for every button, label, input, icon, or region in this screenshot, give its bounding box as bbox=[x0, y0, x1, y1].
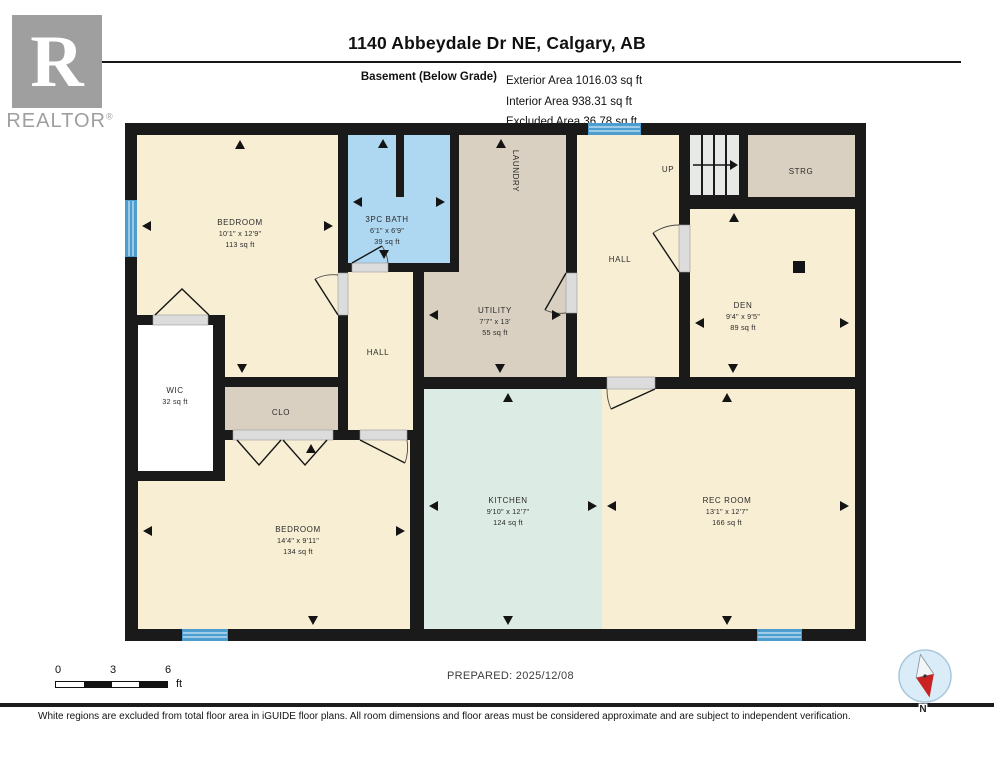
label-bath-name: 3PC BATH bbox=[365, 215, 408, 224]
label-rec-area: 166 sq ft bbox=[712, 518, 742, 527]
exterior-area: Exterior Area 1016.03 sq ft bbox=[506, 71, 642, 92]
label-kitchen-area: 124 sq ft bbox=[493, 518, 523, 527]
bath-partition-wall bbox=[396, 135, 404, 197]
window-left bbox=[125, 200, 137, 257]
footer-divider bbox=[0, 703, 994, 707]
scale-tick-3: 3 bbox=[110, 664, 116, 676]
label-bedroom2-dims: 14'4" x 9'11" bbox=[277, 536, 319, 545]
door-opening-bath bbox=[352, 263, 388, 272]
realtor-logo-letter: R bbox=[30, 25, 83, 99]
label-kitchen-dims: 9'10" x 12'7" bbox=[487, 507, 530, 516]
label-rec-dims: 13'1" x 12'7" bbox=[706, 507, 749, 516]
door-opening-wic bbox=[153, 315, 208, 325]
window-bedroom2 bbox=[182, 629, 228, 641]
registered-mark: ® bbox=[106, 111, 114, 121]
realtor-wordmark: REALTOR® bbox=[2, 110, 118, 133]
label-utility-area: 55 sq ft bbox=[482, 328, 508, 337]
scale-tick-6: 6 bbox=[165, 664, 171, 676]
page-title: 1140 Abbeydale Dr NE, Calgary, AB bbox=[0, 33, 994, 54]
label-bath-dims: 6'1" x 6'9" bbox=[370, 226, 404, 235]
floor-plan-drawing: BEDROOM 10'1" x 12'9" 113 sq ft 3PC BATH… bbox=[125, 123, 866, 641]
label-bedroom1-dims: 10'1" x 12'9" bbox=[219, 229, 262, 238]
compass-icon: N bbox=[895, 646, 955, 718]
label-bath-area: 39 sq ft bbox=[374, 237, 400, 246]
label-den-name: DEN bbox=[734, 301, 753, 310]
door-opening-closet bbox=[233, 430, 333, 440]
label-hall-center: HALL bbox=[367, 348, 389, 357]
label-utility-dims: 7'7" x 13' bbox=[479, 317, 511, 326]
label-kitchen-name: KITCHEN bbox=[488, 496, 527, 505]
floor-plan-page: 1140 Abbeydale Dr NE, Calgary, AB R REAL… bbox=[0, 0, 994, 768]
label-hall-top: HALL bbox=[609, 255, 631, 264]
label-den-area: 89 sq ft bbox=[730, 323, 756, 332]
room-den bbox=[690, 209, 855, 377]
door-opening-hall-bedroom2 bbox=[360, 430, 407, 440]
label-wic-area: 32 sq ft bbox=[162, 397, 188, 406]
label-bedroom1-name: BEDROOM bbox=[217, 218, 263, 227]
room-storage bbox=[748, 135, 855, 197]
door-opening-den bbox=[679, 225, 690, 272]
label-den-dims: 9'4" x 9'5" bbox=[726, 312, 760, 321]
support-post bbox=[793, 261, 805, 273]
door-opening-bedroom1-hall bbox=[338, 273, 348, 315]
label-stairs-up: UP bbox=[662, 165, 674, 174]
scale-tick-0: 0 bbox=[55, 664, 61, 676]
window-top bbox=[588, 123, 641, 135]
room-bedroom-2 bbox=[138, 481, 410, 629]
label-laundry-name: LAUNDRY bbox=[511, 150, 520, 192]
scale-unit-label: ft bbox=[176, 678, 182, 690]
interior-area: Interior Area 938.31 sq ft bbox=[506, 92, 642, 113]
room-bedroom-2-upper bbox=[225, 440, 410, 481]
scale-bar bbox=[55, 681, 168, 688]
door-opening-kitchen bbox=[607, 377, 655, 389]
label-rec-name: REC ROOM bbox=[703, 496, 752, 505]
label-storage: STRG bbox=[789, 167, 814, 176]
label-bedroom2-area: 134 sq ft bbox=[283, 547, 313, 556]
disclaimer-text: White regions are excluded from total fl… bbox=[38, 711, 851, 722]
door-opening-utility bbox=[566, 273, 577, 313]
label-wic-name: WIC bbox=[166, 386, 183, 395]
floor-name-label: Basement (Below Grade) bbox=[240, 71, 497, 83]
prepared-date: PREPARED: 2025/12/08 bbox=[447, 670, 574, 682]
label-closet: CLO bbox=[272, 408, 290, 417]
window-rec bbox=[757, 629, 802, 641]
realtor-logo-icon: R bbox=[12, 15, 102, 108]
title-underline bbox=[33, 61, 961, 63]
label-bedroom1-area: 113 sq ft bbox=[225, 240, 254, 249]
label-utility-name: UTILITY bbox=[478, 306, 512, 315]
compass-north-label: N bbox=[919, 704, 926, 715]
label-bedroom2-name: BEDROOM bbox=[275, 525, 321, 534]
